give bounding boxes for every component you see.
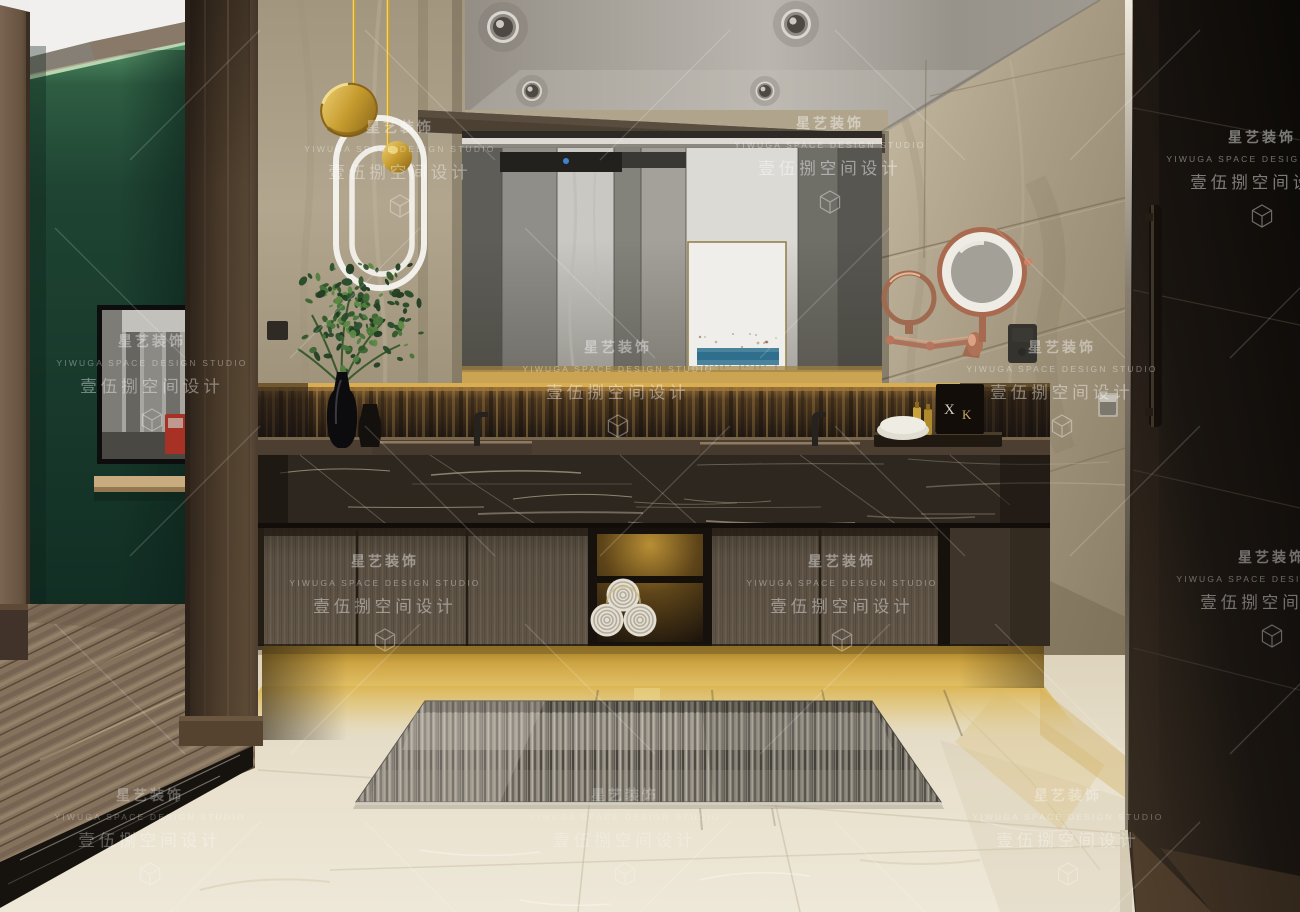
svg-text:星艺装饰: 星艺装饰 <box>584 339 652 355</box>
svg-text:壹伍捌空间设计: 壹伍捌空间设计 <box>770 597 914 616</box>
svg-text:星艺装饰: 星艺装饰 <box>1034 787 1102 803</box>
svg-text:星艺装饰: 星艺装饰 <box>116 787 184 803</box>
svg-text:YIWUGA SPACE DESIGN STUDIO: YIWUGA SPACE DESIGN STUDIO <box>1166 154 1300 164</box>
svg-text:X: X <box>944 402 955 418</box>
svg-text:YIWUGA SPACE DESIGN STUDIO: YIWUGA SPACE DESIGN STUDIO <box>972 812 1163 822</box>
svg-text:壹伍捌空间设计: 壹伍捌空间设计 <box>328 163 472 182</box>
svg-text:YIWUGA SPACE DESIGN STUDIO: YIWUGA SPACE DESIGN STUDIO <box>54 812 245 822</box>
svg-text:壹伍捌空间设计: 壹伍捌空间设计 <box>996 831 1140 850</box>
svg-text:壹伍捌空间设计: 壹伍捌空间设计 <box>78 831 222 850</box>
svg-text:星艺装饰: 星艺装饰 <box>1028 339 1096 355</box>
svg-text:YIWUGA SPACE DESIGN STUDIO: YIWUGA SPACE DESIGN STUDIO <box>529 812 720 822</box>
svg-text:壹伍捌空间设计: 壹伍捌空间设计 <box>758 159 902 178</box>
svg-text:壹伍捌空间设计: 壹伍捌空间设计 <box>1190 173 1300 192</box>
svg-text:壹伍捌空间设计: 壹伍捌空间设计 <box>553 831 697 850</box>
svg-text:星艺装饰: 星艺装饰 <box>366 119 434 135</box>
svg-text:星艺装饰: 星艺装饰 <box>118 333 186 349</box>
svg-text:星艺装饰: 星艺装饰 <box>1228 129 1296 145</box>
svg-text:星艺装饰: 星艺装饰 <box>351 553 419 569</box>
svg-text:YIWUGA SPACE DESIGN STUDIO: YIWUGA SPACE DESIGN STUDIO <box>1176 574 1300 584</box>
svg-text:壹伍捌空间设计: 壹伍捌空间设计 <box>990 383 1134 402</box>
svg-text:星艺装饰: 星艺装饰 <box>796 115 864 131</box>
svg-text:壹伍捌空间设计: 壹伍捌空间设计 <box>1200 593 1300 612</box>
svg-text:壹伍捌空间设计: 壹伍捌空间设计 <box>80 377 224 396</box>
svg-text:YIWUGA SPACE DESIGN STUDIO: YIWUGA SPACE DESIGN STUDIO <box>289 578 480 588</box>
svg-text:壹伍捌空间设计: 壹伍捌空间设计 <box>313 597 457 616</box>
svg-text:YIWUGA SPACE DESIGN STUDIO: YIWUGA SPACE DESIGN STUDIO <box>734 140 925 150</box>
svg-text:YIWUGA SPACE DESIGN STUDIO: YIWUGA SPACE DESIGN STUDIO <box>304 144 495 154</box>
svg-text:星艺装饰: 星艺装饰 <box>591 787 659 803</box>
svg-text:YIWUGA SPACE DESIGN STUDIO: YIWUGA SPACE DESIGN STUDIO <box>746 578 937 588</box>
svg-text:星艺装饰: 星艺装饰 <box>1238 549 1300 565</box>
svg-text:K: K <box>962 407 972 422</box>
svg-text:YIWUGA SPACE DESIGN STUDIO: YIWUGA SPACE DESIGN STUDIO <box>56 358 247 368</box>
svg-text:YIWUGA SPACE DESIGN STUDIO: YIWUGA SPACE DESIGN STUDIO <box>522 364 713 374</box>
svg-text:星艺装饰: 星艺装饰 <box>808 553 876 569</box>
svg-text:YIWUGA SPACE DESIGN STUDIO: YIWUGA SPACE DESIGN STUDIO <box>966 364 1157 374</box>
svg-text:壹伍捌空间设计: 壹伍捌空间设计 <box>546 383 690 402</box>
